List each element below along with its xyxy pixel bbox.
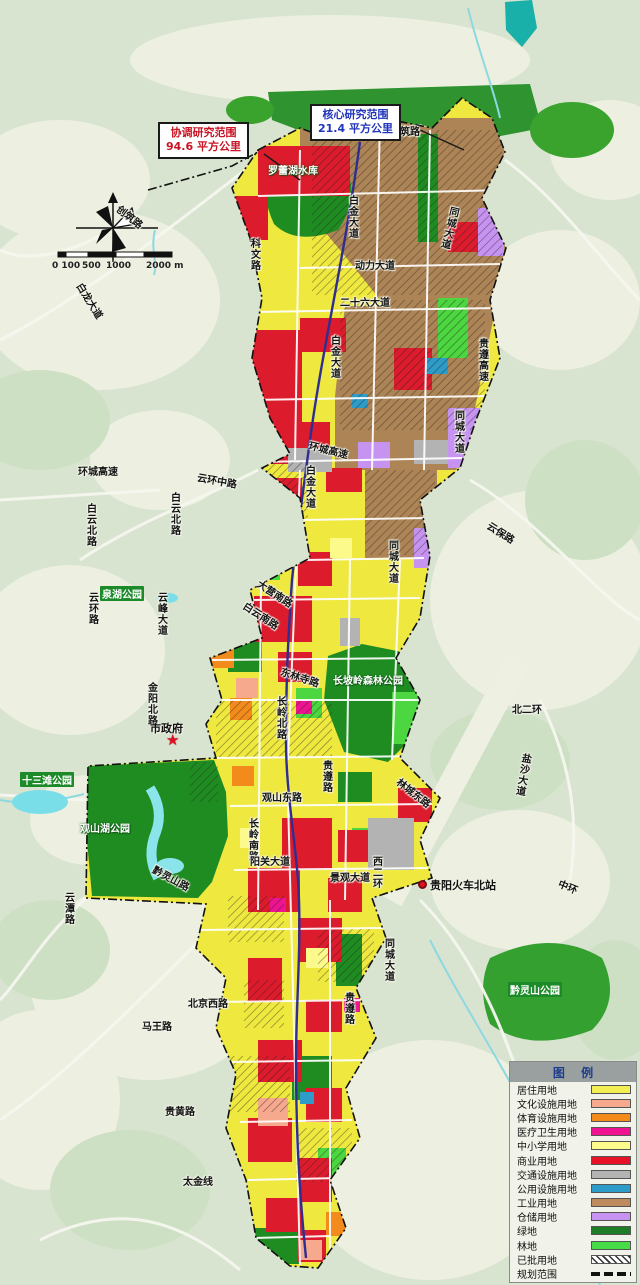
road-label: 同城大道: [386, 540, 397, 584]
park-label: 黔灵山公园: [508, 982, 562, 997]
road-label: 长岭南路: [246, 818, 257, 862]
legend-row: 医疗卫生用地: [510, 1125, 636, 1139]
coordination-scope-line1: 协调研究范围: [166, 126, 241, 140]
road-label: 太金线: [183, 1178, 213, 1189]
legend-panel: 图 例 居住用地 文化设施用地 体育设施用地 医疗卫生用地 中小学用地 商业用地…: [509, 1061, 637, 1283]
park-label: 观山湖公园: [80, 820, 130, 835]
legend-swatch-hatch: [591, 1255, 631, 1264]
road-label: 贵遵路: [320, 760, 331, 793]
core-scope-callout: 核心研究范围 21.4 平方公里: [310, 104, 401, 141]
road-label: 贵遵路: [342, 992, 353, 1025]
legend-label: 仓储用地: [517, 1209, 557, 1224]
legend-row: 交通设施用地: [510, 1167, 636, 1181]
legend-row: 已批用地: [510, 1252, 636, 1266]
legend-label: 交通设施用地: [517, 1167, 577, 1182]
road-label: 北二环: [512, 706, 542, 717]
legend-swatch-dashline: [591, 1269, 631, 1278]
planning-map: 0 100 500 1000 2000 m 协调研究范围 94.6 平方公里 核…: [0, 0, 640, 1285]
legend-row: 商业用地: [510, 1153, 636, 1167]
road-label: 同城大道: [452, 410, 463, 454]
scale-label: 0 100: [52, 261, 80, 271]
legend-row: 规划范围: [510, 1266, 636, 1280]
legend-swatch: [591, 1170, 631, 1179]
legend-row: 公用设施用地: [510, 1181, 636, 1195]
road-label: 西二环: [370, 856, 381, 889]
legend-row: 体育设施用地: [510, 1110, 636, 1124]
road-label: 云潭路: [62, 892, 73, 925]
park-label: 长坡岭森林公园: [333, 672, 403, 687]
coordination-scope-line2: 94.6 平方公里: [166, 140, 241, 154]
road-label: 白云北路: [84, 503, 95, 547]
legend-label: 体育设施用地: [517, 1110, 577, 1125]
legend-label: 中小学用地: [517, 1138, 567, 1153]
legend-row: 文化设施用地: [510, 1096, 636, 1110]
legend-row: 居住用地: [510, 1082, 636, 1096]
legend-row: 林地: [510, 1238, 636, 1252]
park-label: 泉湖公园: [100, 586, 144, 601]
legend-swatch: [591, 1156, 631, 1165]
park-label: 十三滩公园: [20, 772, 74, 787]
legend-swatch: [591, 1127, 631, 1136]
railway-station-label: 贵阳火车北站: [430, 877, 496, 893]
legend-row: 中小学用地: [510, 1139, 636, 1153]
scale-label: 1000: [106, 261, 131, 271]
legend-label: 医疗卫生用地: [517, 1124, 577, 1139]
road-label: 贵黄路: [165, 1108, 195, 1119]
road-label: 白金大道: [346, 195, 357, 239]
legend-label: 居住用地: [517, 1082, 557, 1097]
road-label: 同城大道: [382, 938, 393, 982]
road-label: 环城高速: [78, 468, 118, 479]
road-label: 阳关大道: [250, 858, 290, 869]
coordination-scope-callout: 协调研究范围 94.6 平方公里: [158, 122, 249, 159]
road-label: 贵遵高速: [476, 338, 487, 382]
legend-swatch: [591, 1184, 631, 1193]
road-label: 景观大道: [330, 874, 370, 885]
legend-label: 公用设施用地: [517, 1181, 577, 1196]
scale-label: 500: [82, 261, 101, 271]
reservoir-label: 罗蕾湖水库: [268, 162, 318, 177]
legend-label: 文化设施用地: [517, 1096, 577, 1111]
road-label: 马王路: [142, 1023, 172, 1034]
road-label: 白云北路: [168, 492, 179, 536]
legend-label: 林地: [517, 1238, 537, 1253]
legend-swatch: [591, 1085, 631, 1094]
road-label: 云峰大道: [155, 592, 166, 636]
road-label: 二十六大道: [340, 299, 390, 310]
legend-label: 规划范围: [517, 1266, 557, 1281]
legend-label: 商业用地: [517, 1153, 557, 1168]
legend-label: 绿地: [517, 1223, 537, 1238]
legend-swatch: [591, 1113, 631, 1122]
road-label: 观山东路: [262, 794, 302, 805]
road-label: 动力大道: [355, 262, 395, 273]
legend-label: 工业用地: [517, 1195, 557, 1210]
legend-title: 图 例: [510, 1062, 636, 1082]
road-label: 北京西路: [188, 1000, 228, 1011]
scale-bar: [58, 252, 172, 257]
road-label: 科文路: [248, 238, 259, 271]
road-label: 云环路: [86, 592, 97, 625]
road-label: 白金大道: [328, 335, 339, 379]
railway-station-icon: [418, 880, 427, 889]
core-scope-line1: 核心研究范围: [318, 108, 393, 122]
core-scope-line2: 21.4 平方公里: [318, 122, 393, 136]
legend-swatch: [591, 1141, 631, 1150]
city-government-star-icon: ★: [166, 733, 179, 748]
legend-row: 仓储用地: [510, 1210, 636, 1224]
legend-swatch: [591, 1099, 631, 1108]
legend-swatch: [591, 1198, 631, 1207]
legend-label: 已批用地: [517, 1252, 557, 1267]
legend-swatch: [591, 1226, 631, 1235]
legend-row: 绿地: [510, 1224, 636, 1238]
road-label: 白金大道: [303, 465, 314, 509]
scale-label: 2000 m: [146, 261, 184, 271]
legend-swatch: [591, 1241, 631, 1250]
legend-row: 工业用地: [510, 1196, 636, 1210]
road-label: 长岭北路: [274, 696, 285, 740]
legend-swatch: [591, 1212, 631, 1221]
